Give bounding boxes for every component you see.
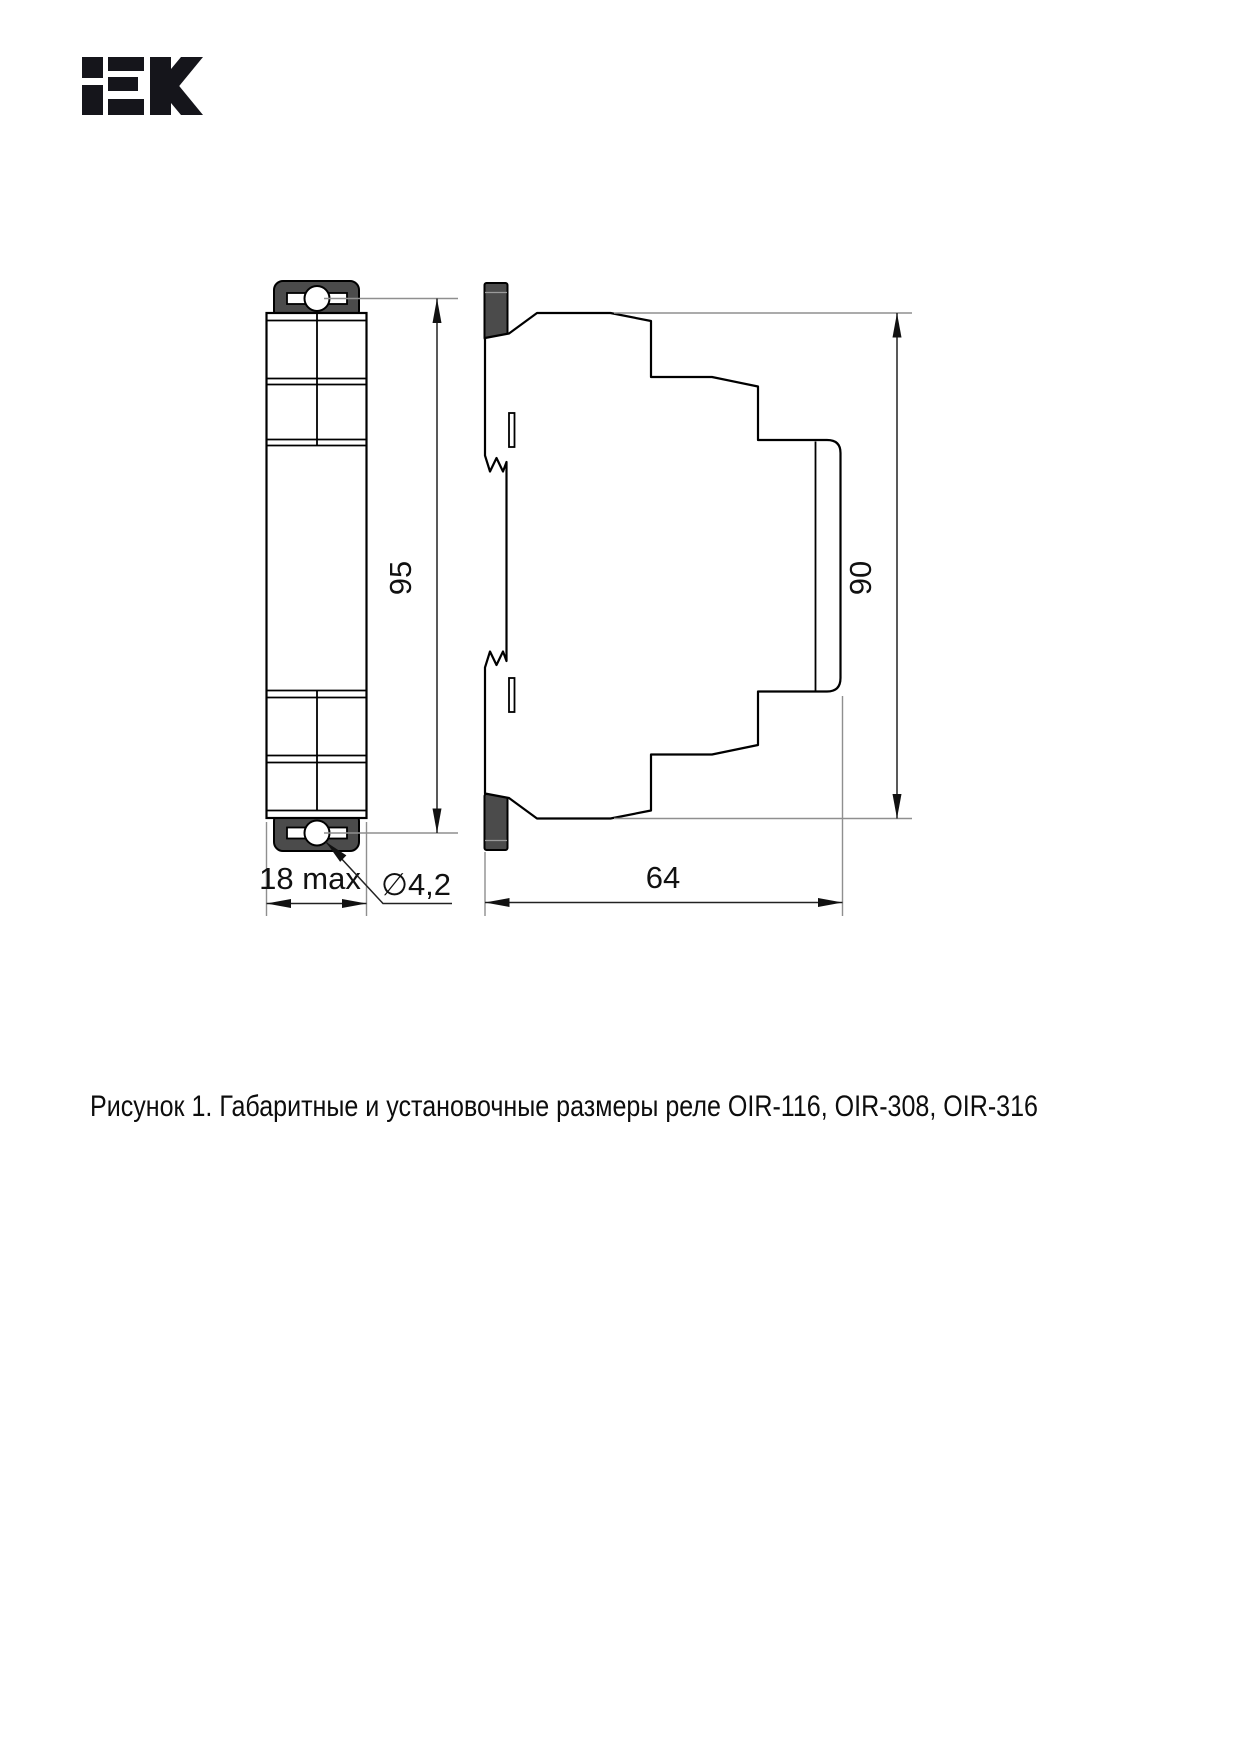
- drawing-canvas: IEK: [0, 0, 1235, 1753]
- figure-caption: Рисунок 1. Габаритные и установочные раз…: [90, 1090, 1038, 1123]
- logo-k-stem: [150, 57, 171, 115]
- logo-e-top: [108, 57, 144, 71]
- side-slot-bottom: [509, 678, 515, 712]
- side-profile: [485, 313, 841, 819]
- side-mount-tab-top: [485, 283, 508, 340]
- dim-front-height: 95: [383, 299, 442, 834]
- dim-label-hole-diameter: ∅4,2: [381, 867, 451, 902]
- document-page: IEK: [0, 0, 1235, 1753]
- dim-label-64: 64: [646, 860, 680, 895]
- dim-label-95: 95: [383, 561, 418, 595]
- dim-side-height: 90: [843, 313, 902, 819]
- side-mount-tab-bottom: [485, 794, 508, 850]
- side-slot-top: [509, 413, 515, 447]
- iek-logo: IEK: [82, 57, 203, 115]
- side-view: [485, 283, 841, 850]
- logo-i-stem: [82, 85, 103, 115]
- dim-label-90: 90: [843, 561, 878, 595]
- logo-e-bottom: [108, 99, 144, 115]
- front-view: [267, 281, 367, 851]
- logo-i-dot: [82, 57, 103, 78]
- logo-e-mid: [108, 77, 138, 91]
- dim-side-depth: 64: [485, 860, 843, 907]
- dim-label-18max: 18 max: [259, 861, 361, 896]
